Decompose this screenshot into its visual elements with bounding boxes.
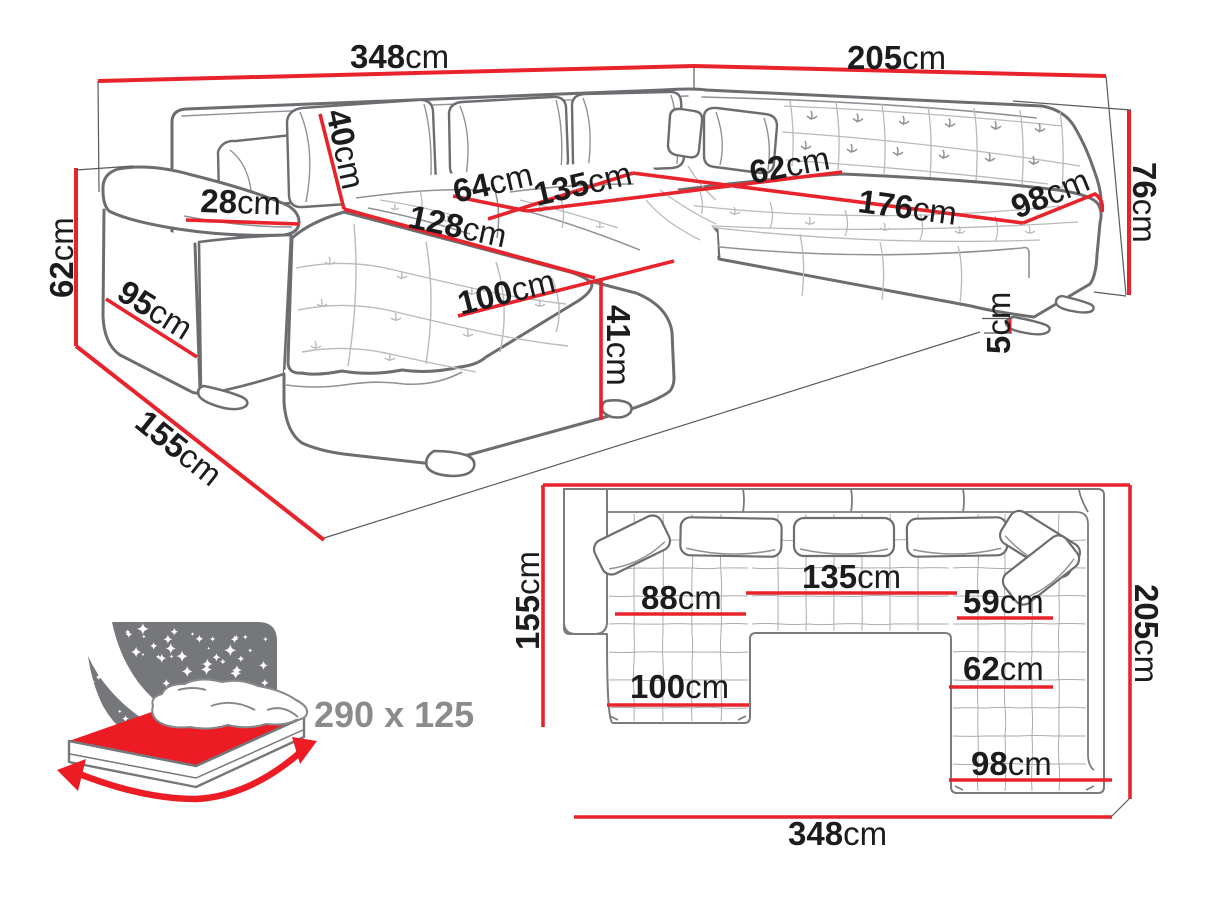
svg-text:205cm: 205cm <box>847 39 946 76</box>
svg-text:155cm: 155cm <box>509 551 546 650</box>
svg-text:62cm: 62cm <box>43 217 80 298</box>
svg-text:135cm: 135cm <box>802 558 901 595</box>
svg-text:28cm: 28cm <box>200 182 282 222</box>
svg-text:348cm: 348cm <box>788 815 887 852</box>
svg-text:5cm: 5cm <box>980 292 1017 354</box>
svg-text:88cm: 88cm <box>641 579 722 616</box>
svg-text:59cm: 59cm <box>963 583 1044 620</box>
svg-text:76cm: 76cm <box>1126 162 1163 243</box>
svg-text:100cm: 100cm <box>630 668 729 705</box>
svg-text:41cm: 41cm <box>600 305 637 386</box>
svg-text:348cm: 348cm <box>350 38 449 75</box>
svg-text:205cm: 205cm <box>1128 584 1165 683</box>
svg-text:98cm: 98cm <box>971 745 1052 782</box>
svg-text:62cm: 62cm <box>963 650 1044 687</box>
svg-text:290 x 125: 290 x 125 <box>314 694 474 735</box>
